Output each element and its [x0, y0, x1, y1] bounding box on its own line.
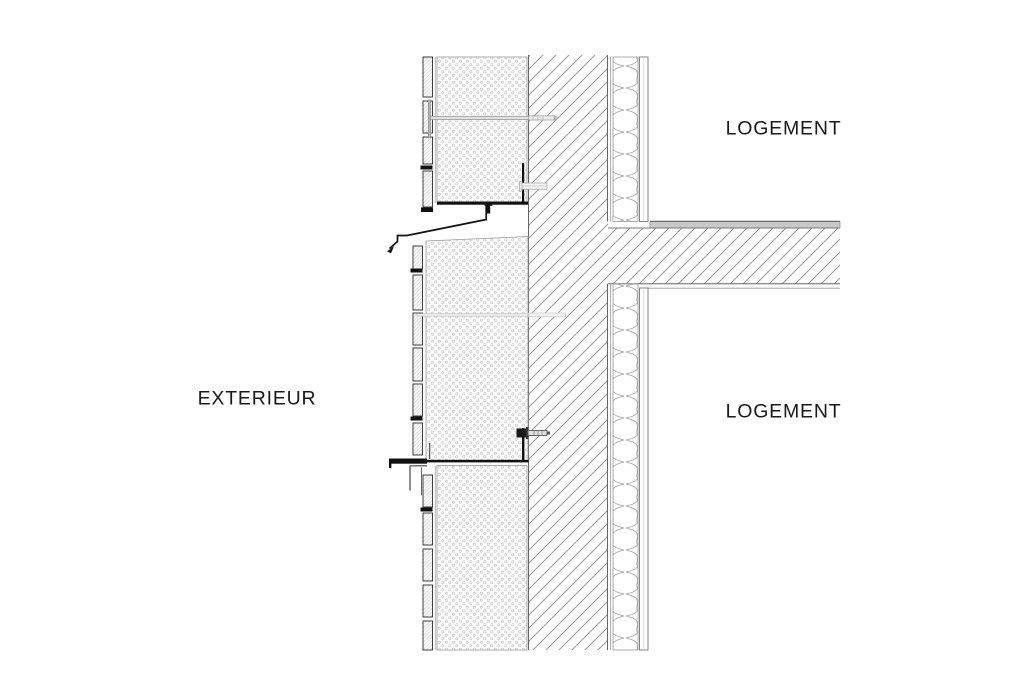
interior-batt-insulation-lower [613, 284, 638, 650]
anchor-dowel [529, 116, 555, 120]
cladding-panel [423, 585, 433, 617]
floor-screed [650, 222, 840, 229]
cladding-panel [423, 57, 433, 97]
bolt-tip [547, 432, 550, 435]
cladding-band-middle [411, 246, 423, 455]
insulation-bottom-closure [437, 202, 528, 205]
interior-lining-upper [611, 57, 649, 222]
anchor-rod [417, 314, 528, 317]
middle-anchor [417, 313, 566, 317]
cladding-panel [413, 348, 423, 381]
anchor-dowel [529, 313, 566, 317]
concrete-wall [528, 55, 608, 650]
floor-slab [608, 221, 840, 288]
anchor-rod [431, 116, 529, 119]
floor-slab-hatch [608, 228, 840, 284]
cladding-panel [423, 475, 433, 507]
concrete-wall-hatch [528, 55, 608, 650]
cladding-band-bottom [421, 475, 433, 650]
cladding-panel [413, 246, 423, 269]
architectural-section-page: EXTERIEUR LOGEMENT LOGEMENT [0, 0, 1024, 683]
panel-clip [421, 508, 433, 512]
panel-clip [421, 166, 433, 170]
flashing-bar [389, 459, 427, 464]
interior-lining-lower [611, 284, 649, 650]
flashing-drip-tick [389, 459, 391, 469]
label-logement-lower: LOGEMENT [726, 401, 842, 423]
cladding-panel [413, 423, 423, 455]
insulation-bottom-closure [420, 460, 529, 463]
fastener-flange [520, 182, 523, 192]
closure-tab [487, 204, 490, 214]
insulation-band-middle [426, 237, 528, 462]
cladding-band-top [421, 57, 434, 212]
hex-bolt-head-body [517, 429, 527, 438]
label-logement-upper: LOGEMENT [726, 118, 842, 140]
cladding-panel [423, 137, 433, 164]
label-exterieur: EXTERIEUR [198, 388, 317, 410]
insulation-band-top [437, 57, 527, 202]
cladding-panel [413, 384, 423, 416]
panel-clip [411, 417, 423, 421]
insulation-band-bottom [437, 466, 527, 651]
interior-batt-insulation-upper [613, 57, 638, 222]
panel-clip [411, 269, 423, 273]
bolt-shank [528, 431, 547, 436]
cladding-panel [413, 275, 423, 310]
wall-section-drawing: EXTERIEUR LOGEMENT LOGEMENT [0, 0, 1024, 683]
panel-bottom-lip [421, 208, 433, 213]
cladding-panel [423, 171, 433, 207]
exterior-insulation [426, 57, 528, 650]
cladding-panel [423, 621, 433, 650]
cladding-panel [423, 513, 433, 545]
cladding-panel [423, 549, 433, 581]
cladding-panel [413, 313, 423, 345]
